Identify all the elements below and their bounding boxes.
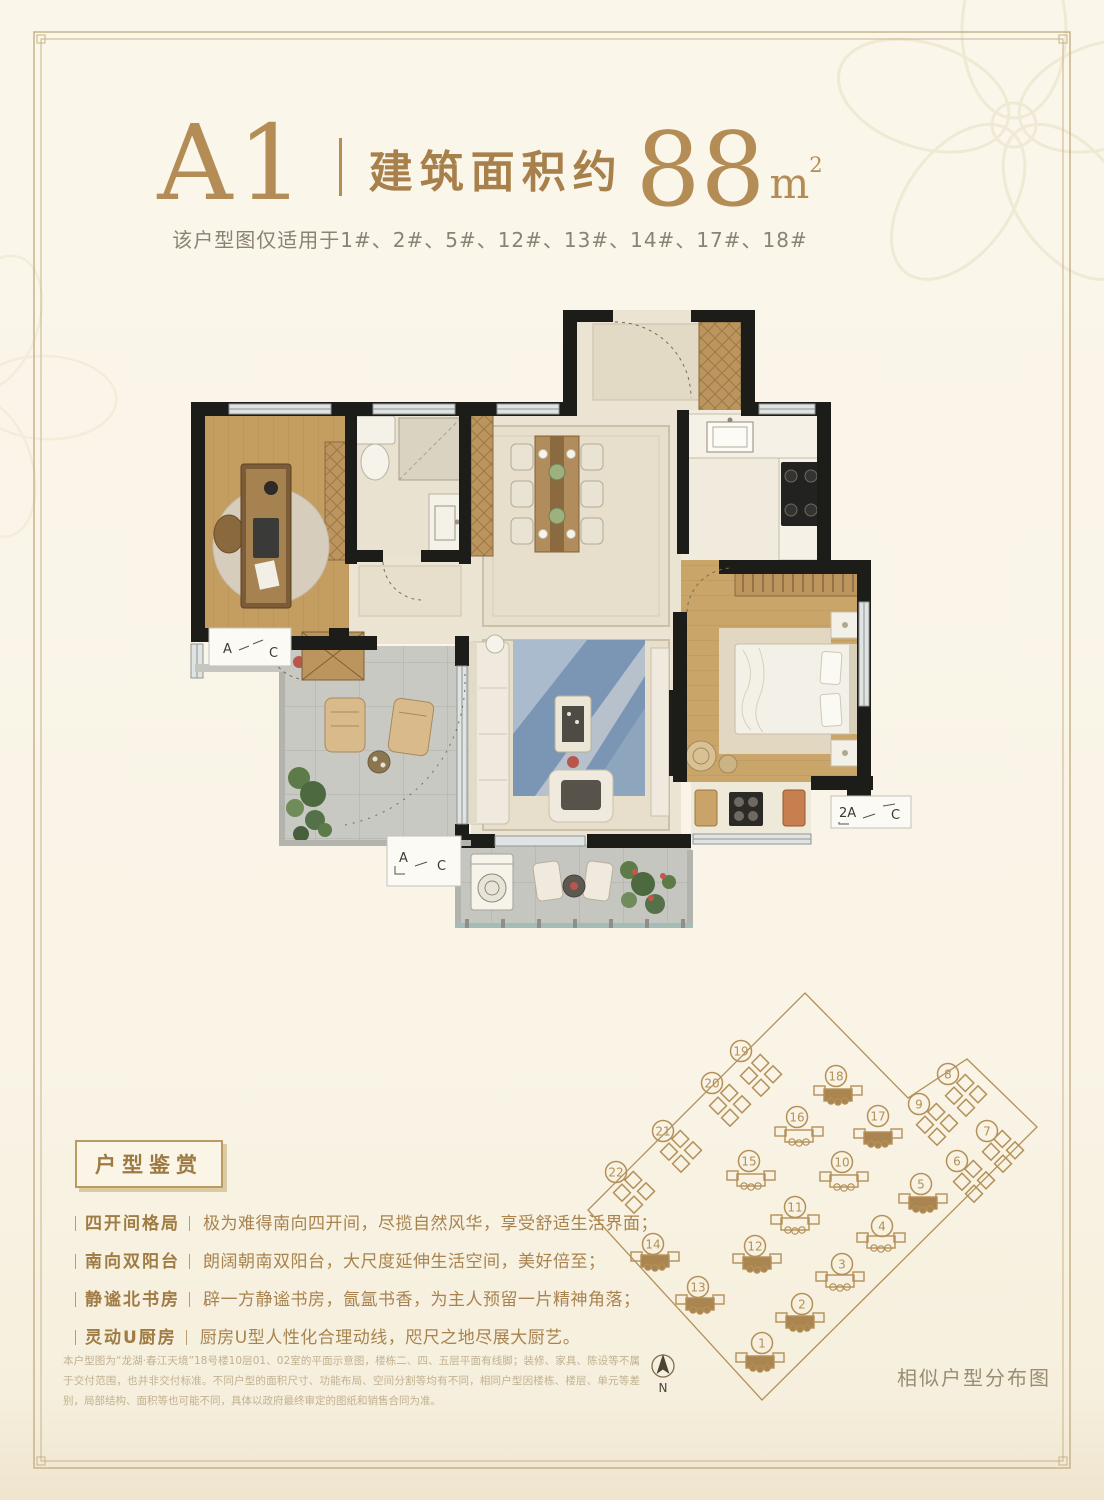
- area-unit: m2: [769, 153, 822, 208]
- building-3: 3: [816, 1254, 864, 1292]
- svg-text:15: 15: [741, 1155, 756, 1169]
- building-5: 5: [899, 1174, 947, 1214]
- feature-item-study: 静谧北书房辟一方静谧书房，氤氲书香，为主人预留一片精神角落；: [75, 1292, 635, 1309]
- feature-item-balcony: 南向双阳台朗阔朝南双阳台，大尺度延伸生活空间，美好倍至；: [75, 1254, 635, 1271]
- header: A1 建筑面积约 88 m2: [0, 116, 980, 212]
- svg-text:20: 20: [704, 1077, 719, 1091]
- study-room: [199, 410, 349, 636]
- stove: [781, 462, 819, 526]
- svg-text:14: 14: [645, 1238, 660, 1252]
- building-22: 22: [606, 1162, 656, 1214]
- building-2: 2: [776, 1294, 824, 1333]
- building-13: 13: [676, 1277, 724, 1315]
- site-boundary: [588, 993, 1037, 1400]
- applicability-note: 该户型图仅适用于1#、2#、5#、12#、13#、14#、17#、18#: [0, 224, 980, 253]
- svg-text:A: A: [223, 642, 232, 657]
- svg-text:C: C: [891, 808, 900, 823]
- feature-label: 灵动U厨房: [85, 1328, 177, 1348]
- svg-text:2: 2: [798, 1298, 806, 1312]
- feature-text: 朗阔朝南双阳台，大尺度延伸生活空间，美好倍至；: [203, 1252, 606, 1272]
- svg-text:1: 1: [758, 1337, 766, 1351]
- living-room: [467, 635, 674, 830]
- svg-text:19: 19: [733, 1045, 748, 1059]
- pipe-icon: [189, 1216, 190, 1231]
- building-4: 4: [857, 1216, 905, 1253]
- svg-text:6: 6: [953, 1155, 961, 1169]
- svg-text:18: 18: [828, 1070, 843, 1084]
- building-17: 17: [854, 1106, 902, 1149]
- pipe-icon: [189, 1292, 190, 1307]
- svg-text:16: 16: [789, 1111, 804, 1125]
- svg-text:C: C: [269, 646, 278, 661]
- feature-item-kitchen: 灵动U厨房厨房U型人性化合理动线，咫尺之地尽展大厨艺。: [75, 1330, 635, 1347]
- svg-text:4: 4: [878, 1220, 886, 1234]
- bedroom-balcony: [691, 782, 811, 838]
- pipe-icon: [75, 1330, 76, 1345]
- svg-text:11: 11: [787, 1201, 802, 1215]
- south-balcony: [461, 844, 691, 928]
- washing-machine: [471, 854, 513, 910]
- master-bedroom: [681, 560, 871, 782]
- bathroom: [349, 410, 465, 556]
- feature-list: 四开间格局极为难得南向四开间，尽揽自然风华，享受舒适生活界面； 南向双阳台朗阔朝…: [75, 1216, 635, 1347]
- siteplan-caption: 相似户型分布图: [878, 1362, 1070, 1391]
- kitchen: [681, 410, 821, 560]
- ac-box-study: A C: [209, 628, 291, 666]
- pipe-icon: [189, 1254, 190, 1269]
- siteplan-buildings: 12345678910111213141516171819202122: [606, 1041, 1025, 1373]
- area-prefix: 建筑面积约: [369, 136, 624, 200]
- svg-text:22: 22: [608, 1166, 623, 1180]
- entry-foyer: [577, 310, 741, 414]
- building-16: 16: [775, 1107, 823, 1147]
- building-18: 18: [814, 1066, 862, 1106]
- pipe-icon: [75, 1254, 76, 1269]
- svg-text:10: 10: [834, 1156, 849, 1170]
- svg-text:5: 5: [917, 1178, 925, 1192]
- svg-text:N: N: [659, 1381, 668, 1395]
- sofa: [467, 642, 509, 824]
- feature-label: 四开间格局: [85, 1214, 180, 1234]
- terrace: [283, 632, 469, 846]
- feature-label: 静谧北书房: [85, 1290, 180, 1310]
- area-value: 88: [636, 130, 766, 212]
- svg-text:12: 12: [747, 1240, 762, 1254]
- building-11: 11: [771, 1197, 819, 1235]
- building-12: 12: [733, 1236, 781, 1274]
- svg-text:7: 7: [983, 1125, 991, 1139]
- pipe-icon: [75, 1216, 76, 1231]
- features-section: 户型鉴赏 四开间格局极为难得南向四开间，尽揽自然风华，享受舒适生活界面； 南向双…: [75, 1140, 635, 1368]
- svg-text:2A: 2A: [839, 806, 856, 821]
- pipe-icon: [75, 1292, 76, 1307]
- header-divider: [339, 138, 342, 196]
- building-15: 15: [727, 1151, 775, 1191]
- floor-plan: A C A C 2A C: [183, 310, 923, 942]
- svg-text:C: C: [437, 859, 446, 874]
- feature-item-layout: 四开间格局极为难得南向四开间，尽揽自然风华，享受舒适生活界面；: [75, 1216, 635, 1233]
- feature-label: 南向双阳台: [85, 1252, 180, 1272]
- site-plan: 12345678910111213141516171819202122 N: [575, 985, 1055, 1415]
- building-20: 20: [702, 1073, 752, 1127]
- hallway: [349, 556, 471, 644]
- svg-text:A: A: [399, 851, 408, 866]
- svg-text:8: 8: [944, 1068, 952, 1082]
- ac-box-balcony: A C: [387, 836, 461, 886]
- unit-code: A1: [157, 116, 308, 212]
- svg-text:9: 9: [915, 1098, 923, 1112]
- svg-text:17: 17: [870, 1110, 885, 1124]
- svg-text:3: 3: [838, 1258, 846, 1272]
- flower-ornament-left: [0, 243, 118, 547]
- building-19: 19: [731, 1041, 783, 1097]
- building-21: 21: [653, 1121, 703, 1173]
- building-10: 10: [820, 1152, 868, 1192]
- ac-box-bedroom: 2A C: [831, 796, 911, 828]
- tv-console: [651, 648, 669, 816]
- disclaimer-text: 本户型图为“龙湖·春江天境”18号楼10层01、02室的平面示意图，楼栋二、四、…: [63, 1352, 640, 1412]
- building-1: 1: [736, 1333, 784, 1373]
- armchair: [686, 741, 716, 771]
- features-badge: 户型鉴赏: [75, 1140, 223, 1188]
- svg-text:21: 21: [655, 1125, 670, 1139]
- feature-text: 厨房U型人性化合理动线，咫尺之地尽展大厨艺。: [200, 1328, 580, 1348]
- svg-text:13: 13: [690, 1281, 705, 1295]
- brochure-page: A1 建筑面积约 88 m2 该户型图仅适用于1#、2#、5#、12#、13#、…: [0, 0, 1104, 1500]
- compass-icon: N: [652, 1354, 674, 1395]
- pipe-icon: [186, 1330, 187, 1345]
- vase: [567, 756, 579, 768]
- bed: [735, 644, 857, 734]
